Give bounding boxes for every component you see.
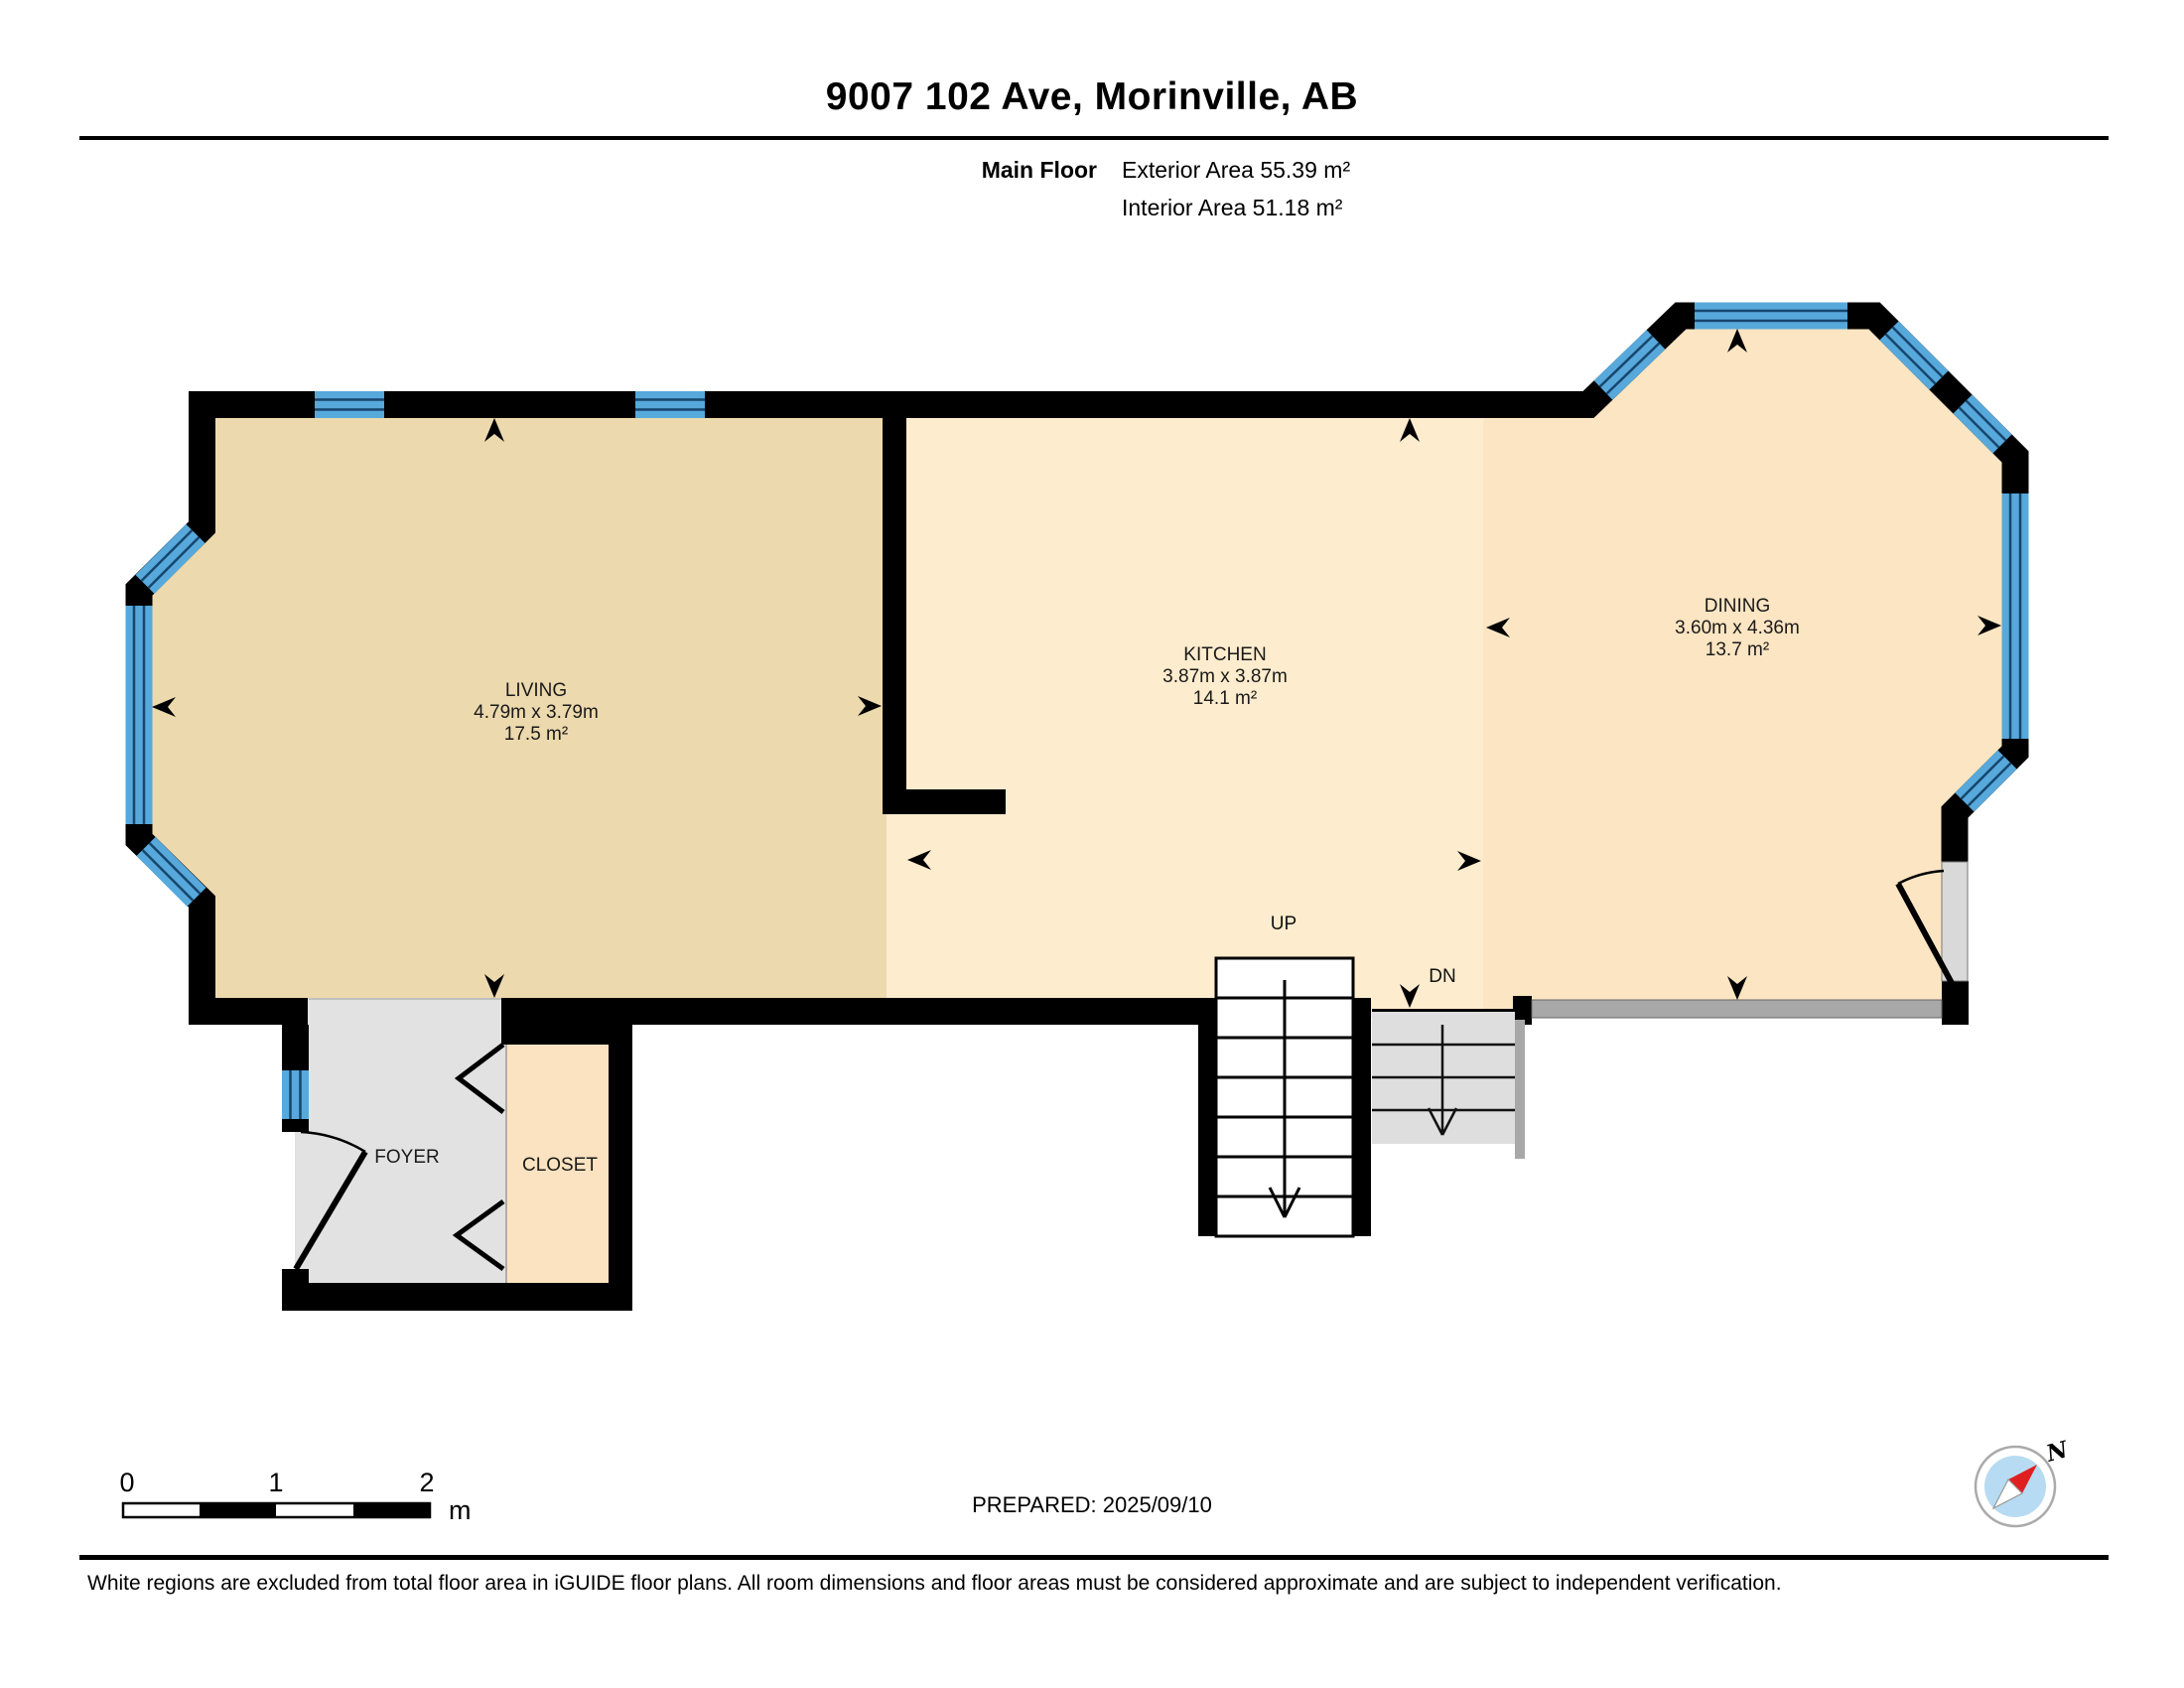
kitchen-dims: 3.87m x 3.87m	[1162, 666, 1288, 687]
foyer-name: FOYER	[374, 1147, 439, 1168]
room-floors	[139, 316, 2015, 1283]
living-area: 17.5 m²	[504, 724, 568, 745]
kitchen-name: KITCHEN	[1183, 644, 1266, 665]
living-dims: 4.79m x 3.79m	[474, 702, 599, 723]
prepared-date: PREPARED: 2025/09/10	[893, 1492, 1291, 1518]
foyer-bottom-wall	[282, 1283, 632, 1311]
dn-handrail	[1515, 1020, 1525, 1159]
dining-door-panel	[1942, 862, 1968, 981]
closet-top-wall	[501, 998, 632, 1045]
stairwell-right-wall	[1353, 998, 1371, 1236]
dining-dims: 3.60m x 4.36m	[1675, 618, 1800, 638]
stairwell-left-wall	[1198, 998, 1216, 1236]
dining-railing	[1532, 1000, 1942, 1018]
living-name: LIVING	[505, 680, 567, 701]
foyer-left-wall-b	[282, 1119, 309, 1132]
closet-right-wall	[609, 1045, 632, 1283]
kitchen-area: 14.1 m²	[1193, 688, 1257, 709]
dn-label: DN	[1429, 966, 1455, 987]
dining-br-corner	[1942, 981, 1969, 1025]
dining-floor	[1483, 316, 2015, 1018]
divider-stub	[883, 789, 1006, 814]
divider-wall	[883, 404, 906, 814]
up-label: UP	[1271, 914, 1297, 934]
foyer-left-wall-a	[282, 1025, 309, 1070]
foyer-floor	[295, 998, 506, 1283]
footer-divider	[79, 1555, 2109, 1560]
dn-top-edge	[1372, 1009, 1515, 1012]
disclaimer-text: White regions are excluded from total fl…	[87, 1572, 2113, 1596]
dining-name: DINING	[1705, 596, 1771, 617]
scale-seg-2	[353, 1503, 430, 1517]
scale-tick-2: 2	[419, 1468, 434, 1497]
scale-seg-1	[200, 1503, 276, 1517]
scale-tick-0: 0	[119, 1468, 134, 1497]
stairs-up: UP	[1216, 914, 1353, 1236]
dining-area: 13.7 m²	[1706, 639, 1769, 660]
bottom-wall-left	[189, 998, 308, 1025]
scale-bar: 0 1 2 m	[119, 1468, 471, 1525]
kitchen-floor	[887, 404, 1483, 1018]
scale-unit: m	[449, 1495, 472, 1525]
bottom-wall-mid	[632, 998, 1216, 1025]
closet-name: CLOSET	[522, 1155, 598, 1176]
floor-plan: UP DN	[0, 0, 2184, 1688]
compass-rose: N	[1976, 1436, 2072, 1526]
scale-tick-1: 1	[268, 1468, 283, 1497]
